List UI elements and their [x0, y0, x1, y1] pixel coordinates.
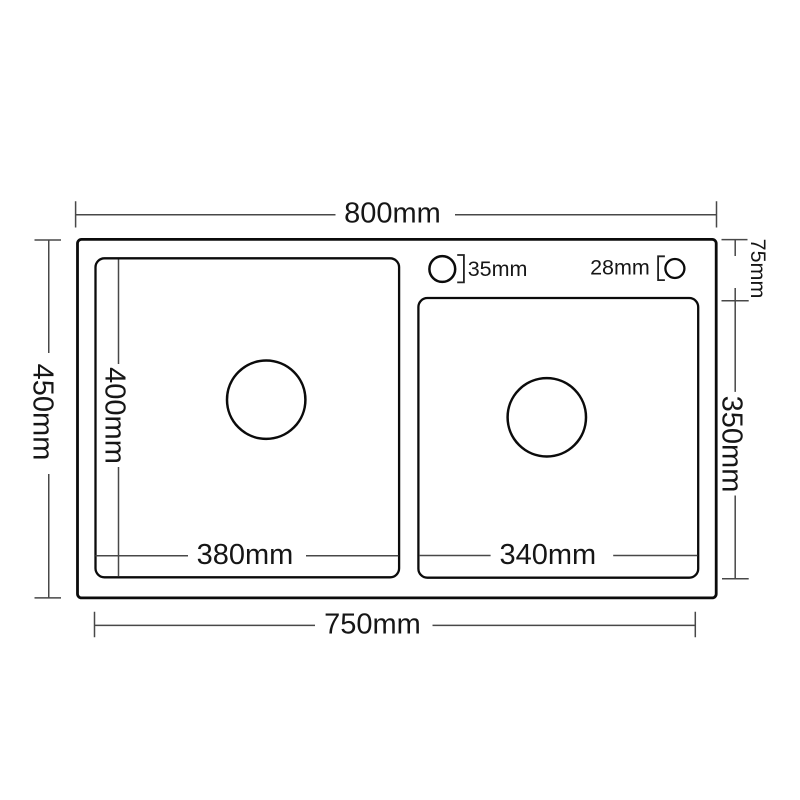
svg-text:400mm: 400mm — [99, 367, 131, 464]
svg-text:28mm: 28mm — [590, 255, 650, 279]
svg-text:340mm: 340mm — [499, 539, 596, 571]
svg-text:750mm: 750mm — [324, 609, 421, 641]
svg-text:35mm: 35mm — [468, 257, 528, 281]
svg-text:450mm: 450mm — [27, 364, 59, 461]
svg-text:75mm: 75mm — [746, 239, 770, 299]
svg-text:800mm: 800mm — [344, 197, 441, 229]
svg-text:350mm: 350mm — [716, 396, 748, 493]
svg-text:380mm: 380mm — [197, 539, 294, 571]
